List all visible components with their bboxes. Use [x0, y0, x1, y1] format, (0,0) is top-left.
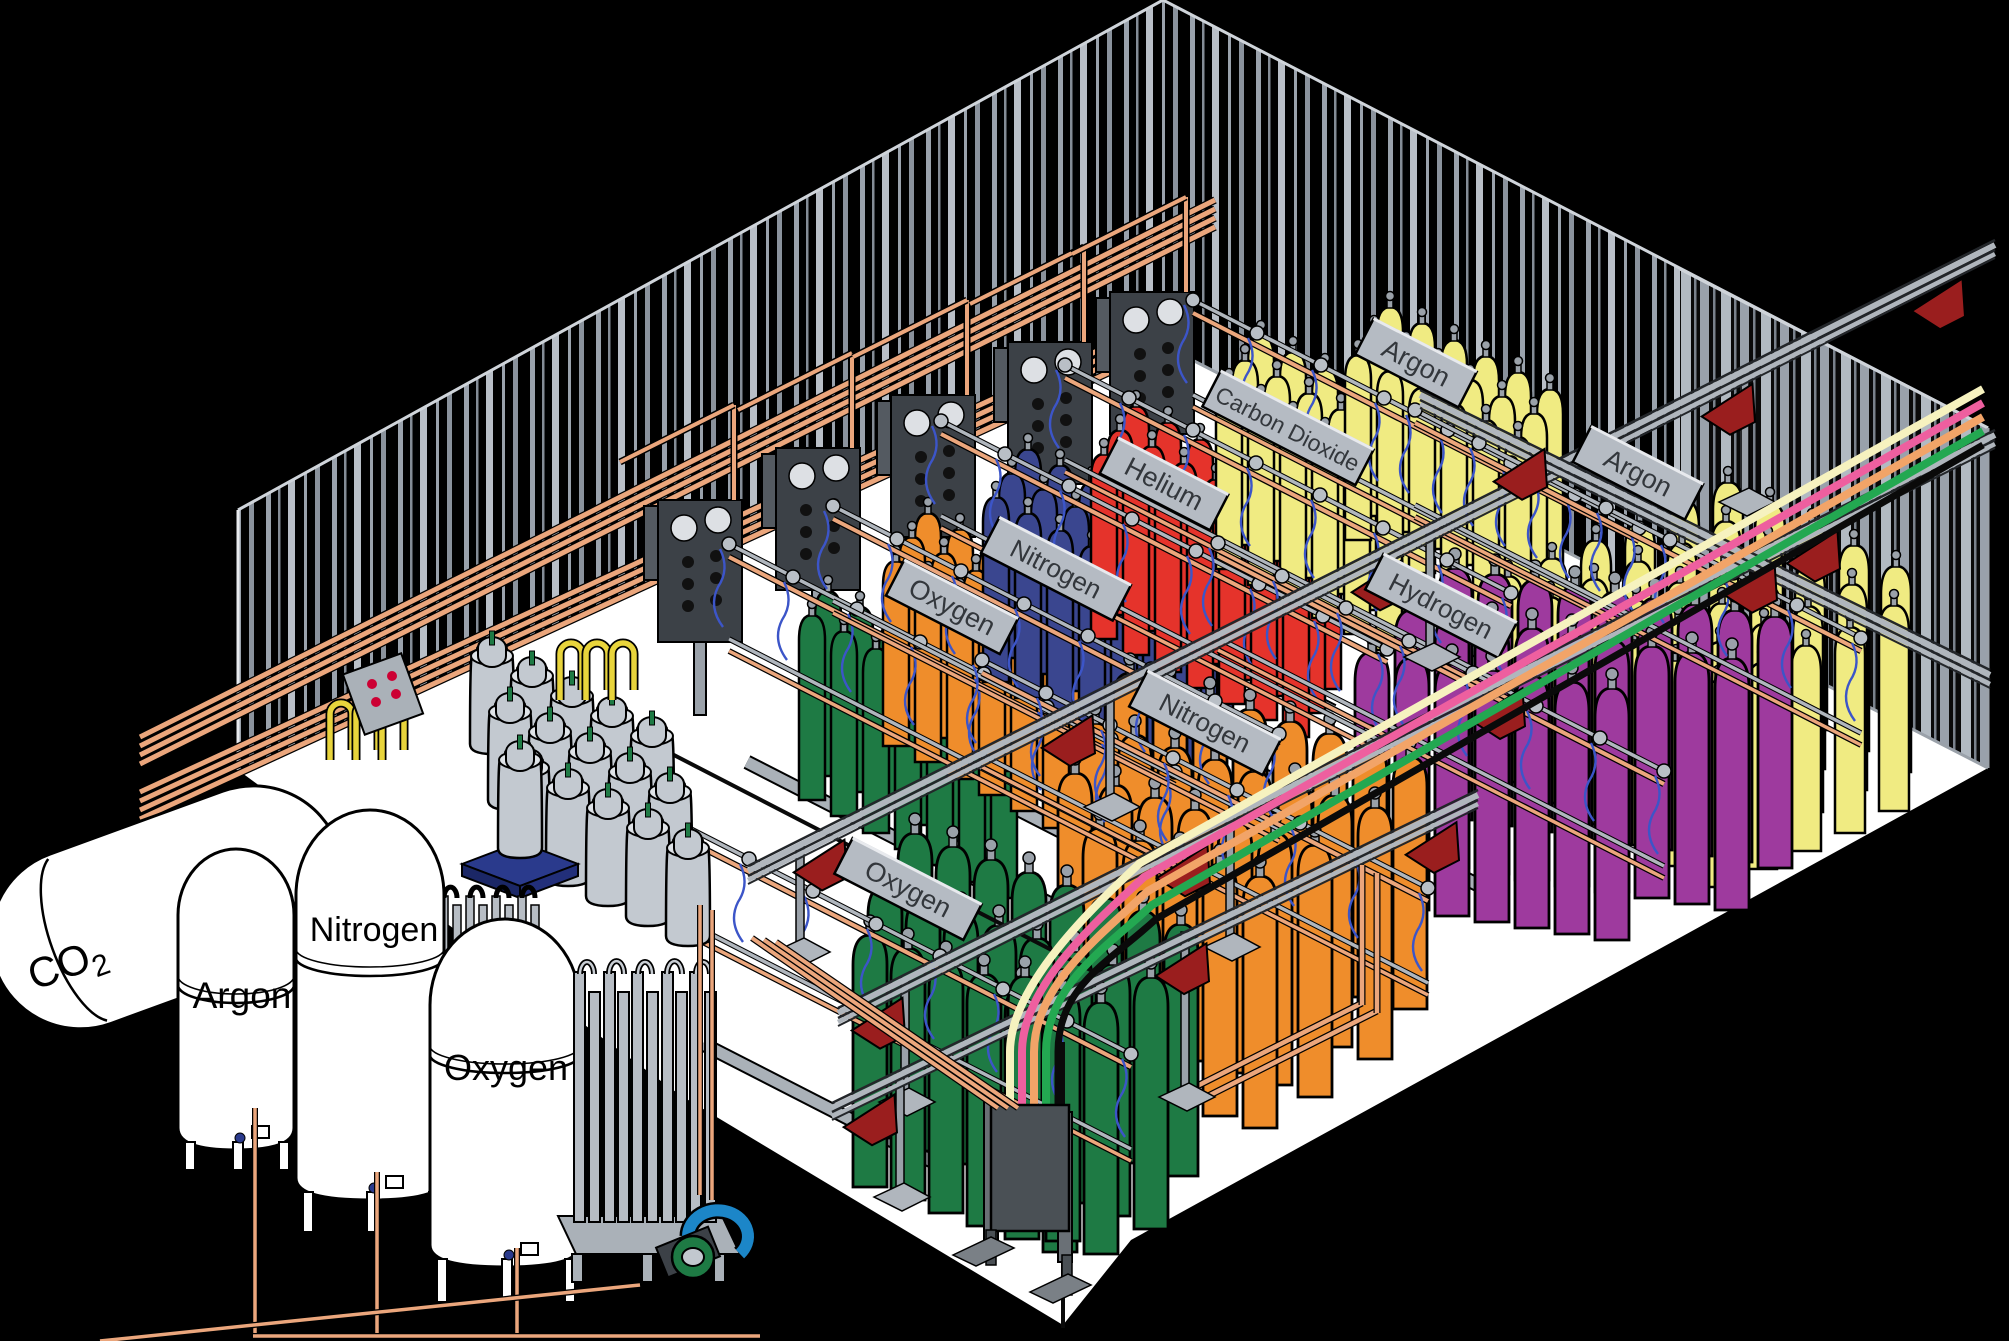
svg-text:Nitrogen: Nitrogen: [310, 911, 439, 949]
svg-text:Oxygen: Oxygen: [444, 1047, 568, 1088]
svg-text:Argon: Argon: [193, 975, 292, 1016]
